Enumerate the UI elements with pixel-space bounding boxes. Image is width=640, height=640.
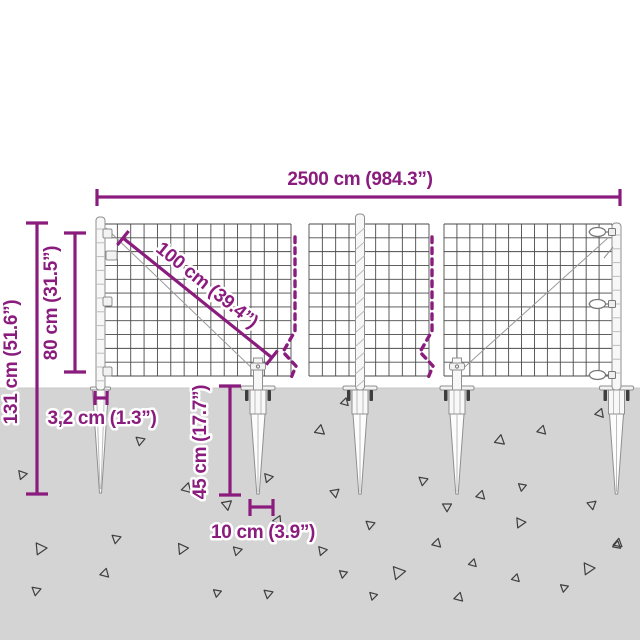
dim-spike-length-label: 45 cm (17.7”) bbox=[190, 385, 211, 499]
dim-total-width: 2500 cm (984.3”) bbox=[97, 169, 620, 206]
dim-mesh-diagonal-label: 100 cm (39.4”) bbox=[152, 238, 262, 332]
dim-total-height-label: 131 cm (51.6”) bbox=[1, 300, 22, 425]
dim-fence-height-label: 80 cm (31.5”) bbox=[41, 246, 62, 360]
dim-post-width-label: 3,2 cm (1.3”) bbox=[47, 408, 156, 429]
dim-total-width-label: 2500 cm (984.3”) bbox=[287, 169, 432, 190]
product-dimension-diagram: 2500 cm (984.3”) 100 cm (39.4”) 80 cm (3… bbox=[0, 0, 640, 640]
dim-spike-plate-width-label: 10 cm (3.9”) bbox=[211, 522, 315, 543]
fence-diagram-svg: 2500 cm (984.3”) 100 cm (39.4”) 80 cm (3… bbox=[0, 0, 640, 640]
dim-mesh-diagonal: 100 cm (39.4”) bbox=[117, 218, 288, 365]
dim-fence-height: 80 cm (31.5”) bbox=[41, 233, 86, 372]
